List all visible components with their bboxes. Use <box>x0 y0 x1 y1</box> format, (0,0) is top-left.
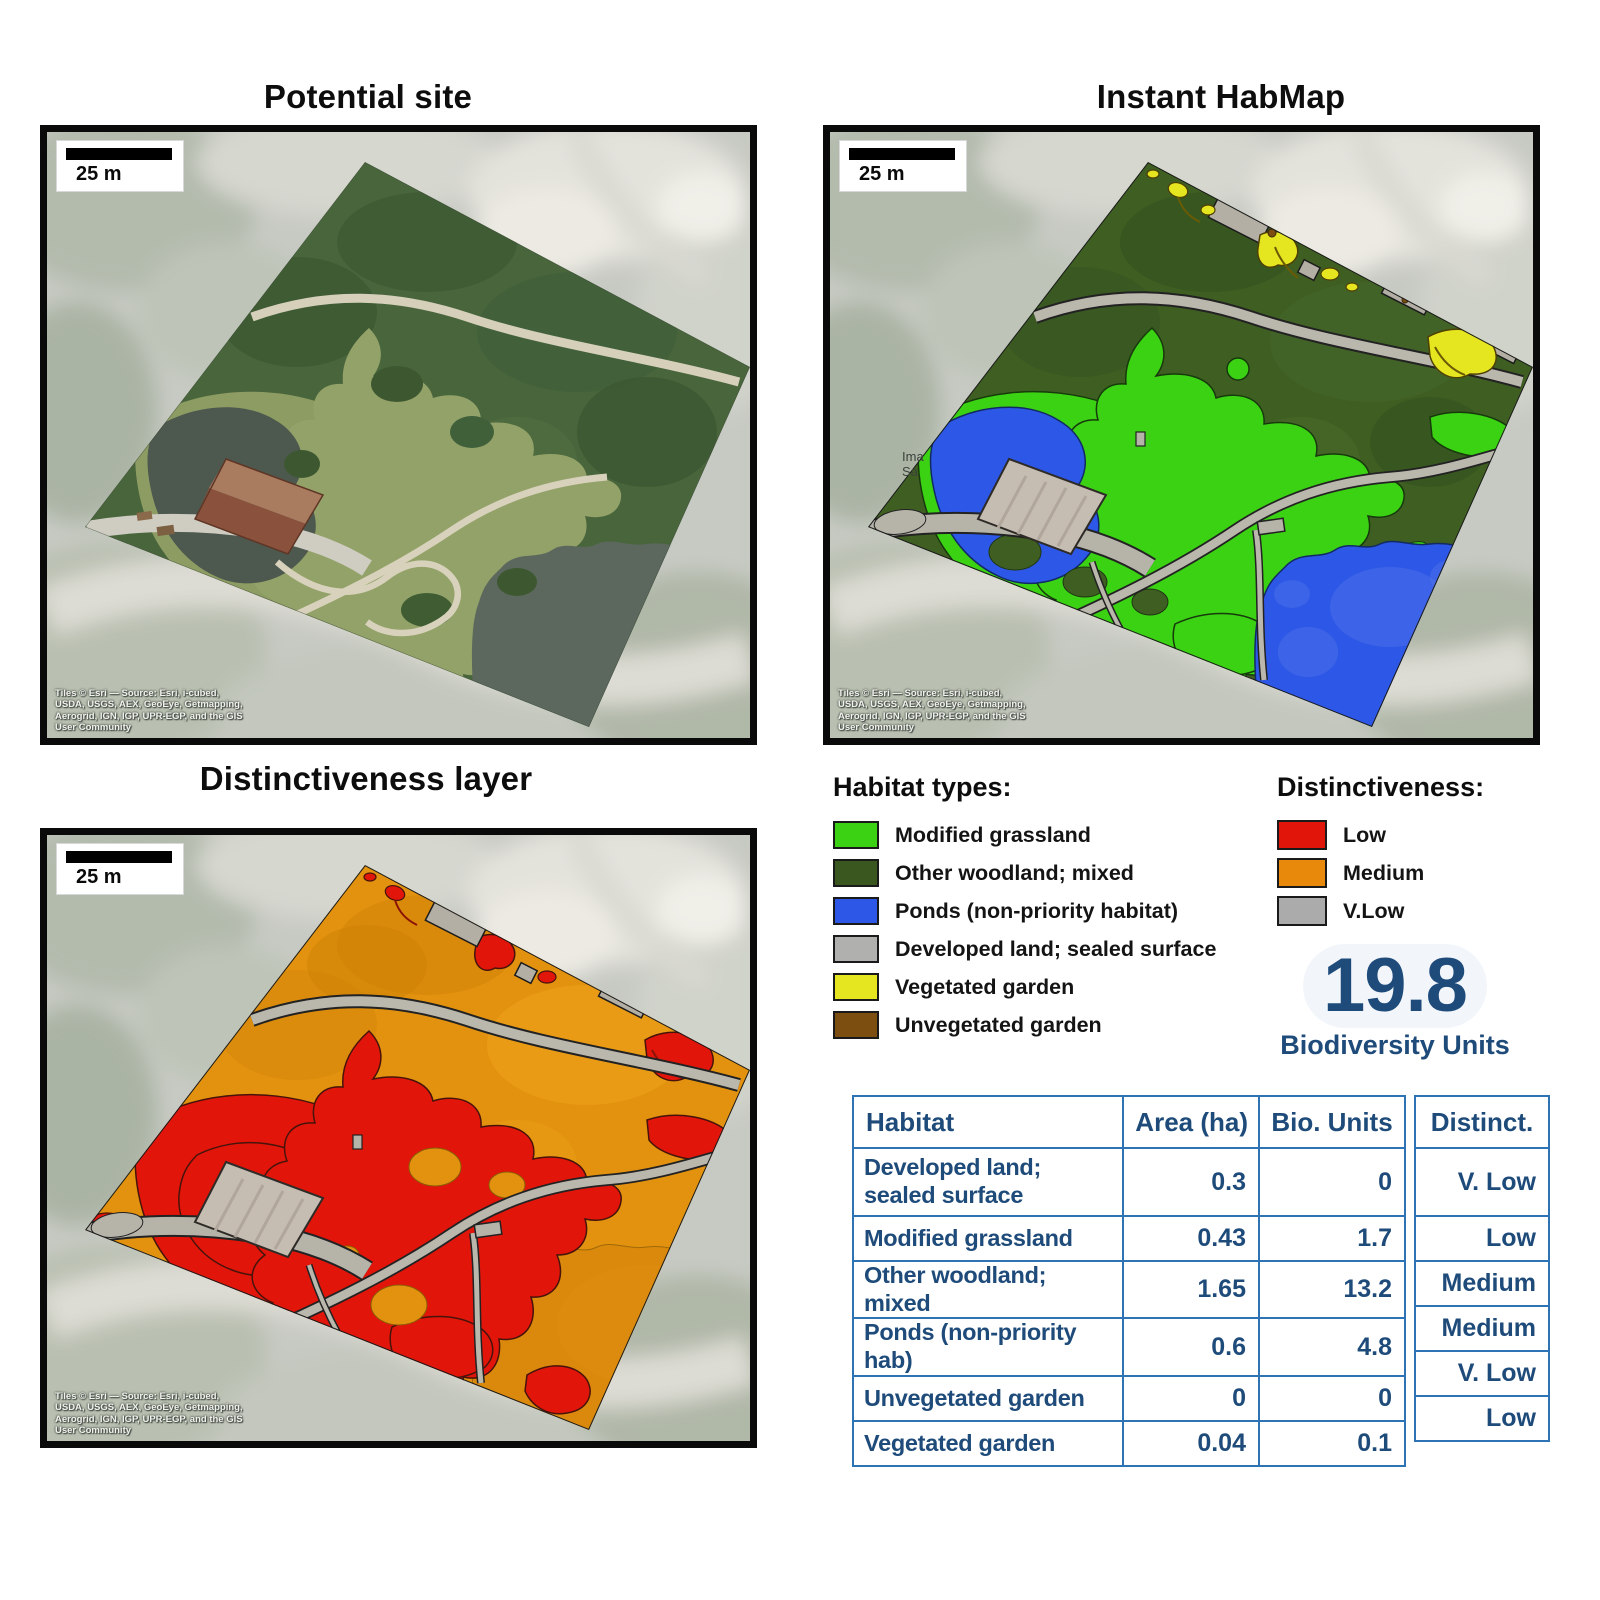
legend-item-unvegetated-garden: Unvegetated garden <box>833 1006 1216 1044</box>
bio-units-cell: 0 <box>1259 1148 1405 1216</box>
scale-bar: 25 m <box>57 844 183 894</box>
legend-item-modified-grassland: Modified grassland <box>833 816 1216 854</box>
distinctiveness-legend-heading: Distinctiveness: <box>1277 772 1484 803</box>
legend-label: Ponds (non-priority habitat) <box>895 899 1178 924</box>
scale-bar: 25 m <box>840 141 966 191</box>
table-row: Low <box>1415 1396 1549 1441</box>
legend-label: Other woodland; mixed <box>895 861 1134 886</box>
title-potential-site: Potential site <box>10 78 726 116</box>
developed-land-swatch <box>833 935 879 963</box>
legend-item-developed-land: Developed land; sealed surface <box>833 930 1216 968</box>
distinctiveness-layer-map <box>47 835 750 1441</box>
habitat-cell: Ponds (non-priority hab) <box>853 1318 1123 1375</box>
vegetated-garden-swatch <box>833 973 879 1001</box>
ponds-swatch <box>833 897 879 925</box>
distinct-cell: Medium <box>1415 1261 1549 1306</box>
col-header-bio-units: Bio. Units <box>1259 1096 1405 1148</box>
habitat-results-main-columns: Habitat Area (ha) Bio. Units Developed l… <box>852 1095 1406 1467</box>
habitat-cell: Other woodland; mixed <box>853 1261 1123 1318</box>
col-header-area: Area (ha) <box>1123 1096 1259 1148</box>
scale-bar: 25 m <box>57 141 183 191</box>
title-instant-habmap: Instant HabMap <box>863 78 1579 116</box>
low-swatch <box>1277 820 1327 850</box>
legend-label: Medium <box>1343 861 1424 886</box>
distinctiveness-map: 25 m Tiles © Esri — Source: Esri, i-cube… <box>40 828 757 1448</box>
table-row: Unvegetated garden 0 0 <box>853 1376 1405 1421</box>
habitat-legend: Habitat types: Modified grassland Other … <box>833 772 1216 1044</box>
bio-units-cell: 1.7 <box>1259 1216 1405 1261</box>
biodiversity-score: 19.8 Biodiversity Units <box>1245 944 1545 1061</box>
potential-site-map: 25 m Tiles © Esri — Source: Esri, i-cube… <box>40 125 757 745</box>
area-cell: 0 <box>1123 1376 1259 1421</box>
legend-label: Low <box>1343 823 1386 848</box>
table-row: Vegetated garden 0.04 0.1 <box>853 1421 1405 1466</box>
vlow-swatch <box>1277 896 1327 926</box>
legend-item-vlow: V.Low <box>1277 892 1484 930</box>
legend-label: V.Low <box>1343 899 1404 924</box>
scale-bar-label: 25 m <box>849 163 955 186</box>
table-row: Other woodland; mixed 1.65 13.2 <box>853 1261 1405 1318</box>
legend-item-medium: Medium <box>1277 854 1484 892</box>
bio-units-cell: 13.2 <box>1259 1261 1405 1318</box>
legend-label: Modified grassland <box>895 823 1091 848</box>
legend-label: Vegetated garden <box>895 975 1074 1000</box>
habitat-cell: Modified grassland <box>853 1216 1123 1261</box>
scale-bar-label: 25 m <box>66 866 172 889</box>
figure-canvas: Potential site Instant HabMap Distinctiv… <box>0 0 1600 1600</box>
table-row: Low <box>1415 1216 1549 1261</box>
table-row: Modified grassland 0.43 1.7 <box>853 1216 1405 1261</box>
habitat-results-table: Habitat Area (ha) Bio. Units Developed l… <box>852 1095 1550 1467</box>
col-header-habitat: Habitat <box>853 1096 1123 1148</box>
distinct-cell: Medium <box>1415 1306 1549 1351</box>
scale-bar-rule <box>66 148 172 160</box>
habitat-cell: Developed land; sealed surface <box>853 1148 1123 1216</box>
imagery-source-partial-label: Ima Sa <box>902 450 924 480</box>
distinct-cell: Low <box>1415 1396 1549 1441</box>
aerial-imagery <box>47 132 750 738</box>
modified-grassland-swatch <box>833 821 879 849</box>
area-cell: 0.04 <box>1123 1421 1259 1466</box>
area-cell: 1.65 <box>1123 1261 1259 1318</box>
legend-label: Unvegetated garden <box>895 1013 1102 1038</box>
legend-item-other-woodland: Other woodland; mixed <box>833 854 1216 892</box>
distinct-cell: V. Low <box>1415 1351 1549 1396</box>
map-attribution: Tiles © Esri — Source: Esri, i-cubed, US… <box>55 1391 290 1436</box>
bio-units-cell: 0 <box>1259 1376 1405 1421</box>
bio-units-cell: 4.8 <box>1259 1318 1405 1375</box>
distinct-cell: Low <box>1415 1216 1549 1261</box>
legend-item-low: Low <box>1277 816 1484 854</box>
area-cell: 0.3 <box>1123 1148 1259 1216</box>
distinctiveness-legend: Distinctiveness: Low Medium V.Low <box>1277 772 1484 930</box>
biodiversity-score-value: 19.8 <box>1303 944 1487 1028</box>
scale-bar-rule <box>849 148 955 160</box>
habitat-legend-heading: Habitat types: <box>833 772 1216 803</box>
habitat-map <box>830 132 1533 738</box>
instant-habmap-map: 25 m Ima Sa Tiles © Esri — Source: Esri,… <box>823 125 1540 745</box>
unvegetated-garden-swatch <box>833 1011 879 1039</box>
map-attribution: Tiles © Esri — Source: Esri, i-cubed, US… <box>55 688 290 733</box>
medium-swatch <box>1277 858 1327 888</box>
table-row: Developed land; sealed surface 0.3 0 <box>853 1148 1405 1216</box>
col-header-distinct: Distinct. <box>1415 1096 1549 1148</box>
table-row: Ponds (non-priority hab) 0.6 4.8 <box>853 1318 1405 1375</box>
habitat-cell: Vegetated garden <box>853 1421 1123 1466</box>
habitat-results-distinct-column: Distinct. V. Low Low Medium Medium V. Lo… <box>1414 1095 1550 1442</box>
title-distinctiveness: Distinctiveness layer <box>8 760 724 798</box>
table-row: V. Low <box>1415 1148 1549 1216</box>
distinct-cell: V. Low <box>1415 1148 1549 1216</box>
legend-item-vegetated-garden: Vegetated garden <box>833 968 1216 1006</box>
scale-bar-label: 25 m <box>66 163 172 186</box>
area-cell: 0.6 <box>1123 1318 1259 1375</box>
legend-item-ponds: Ponds (non-priority habitat) <box>833 892 1216 930</box>
legend-label: Developed land; sealed surface <box>895 937 1216 962</box>
other-woodland-swatch <box>833 859 879 887</box>
table-row: V. Low <box>1415 1351 1549 1396</box>
bio-units-cell: 0.1 <box>1259 1421 1405 1466</box>
table-row: Medium <box>1415 1306 1549 1351</box>
area-cell: 0.43 <box>1123 1216 1259 1261</box>
table-row: Medium <box>1415 1261 1549 1306</box>
map-attribution: Tiles © Esri — Source: Esri, i-cubed, US… <box>838 688 1073 733</box>
biodiversity-score-label: Biodiversity Units <box>1245 1030 1545 1061</box>
scale-bar-rule <box>66 851 172 863</box>
habitat-cell: Unvegetated garden <box>853 1376 1123 1421</box>
